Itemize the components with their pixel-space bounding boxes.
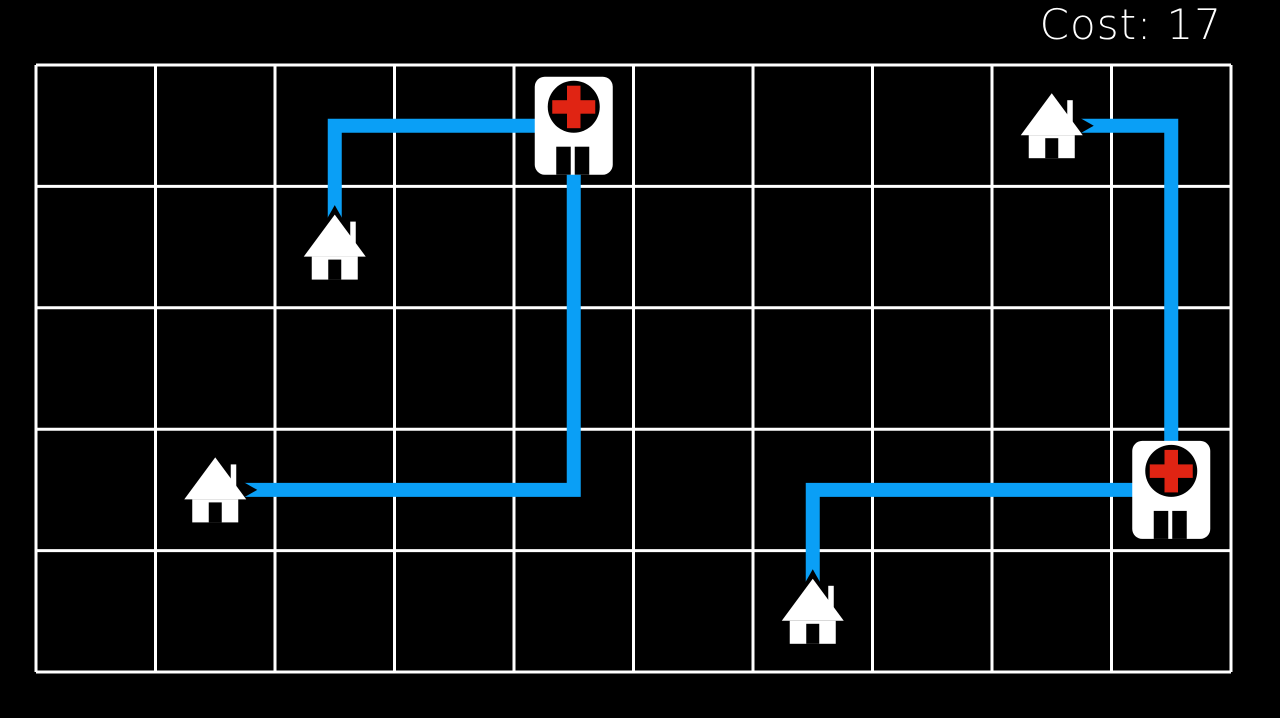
hospital-icon[interactable]: [535, 77, 613, 175]
hospital-icon[interactable]: [1132, 441, 1210, 539]
house-door: [806, 624, 819, 644]
hospital-door-right: [575, 147, 590, 175]
route-house-2-to-hospital-1[interactable]: [242, 126, 574, 499]
route-house-4-to-hospital-2[interactable]: [1079, 117, 1172, 490]
hospital-door-left: [1154, 511, 1169, 539]
house-roof: [1021, 93, 1083, 135]
hospital-door-right: [1172, 511, 1187, 539]
game-stage: Cost: 17: [0, 0, 1280, 718]
house-chimney: [828, 586, 834, 609]
house-door: [328, 260, 341, 280]
board-grid[interactable]: [0, 0, 1280, 718]
house-roof: [304, 215, 366, 257]
hospital-door-left: [556, 147, 571, 175]
house-icon[interactable]: [184, 457, 246, 522]
house-door: [209, 502, 222, 522]
house-chimney: [1067, 100, 1073, 123]
house-icon[interactable]: [304, 215, 366, 280]
hospital-cross-icon-vertical: [1165, 450, 1179, 493]
house-icon[interactable]: [1021, 93, 1083, 158]
route-house-3-to-hospital-2[interactable]: [804, 490, 1171, 584]
house-roof: [782, 579, 844, 621]
house-roof: [184, 457, 246, 499]
hospital-cross-icon-vertical: [567, 86, 581, 129]
house-chimney: [231, 464, 237, 487]
house-chimney: [350, 222, 356, 245]
house-icon[interactable]: [782, 579, 844, 644]
house-door: [1045, 138, 1058, 158]
